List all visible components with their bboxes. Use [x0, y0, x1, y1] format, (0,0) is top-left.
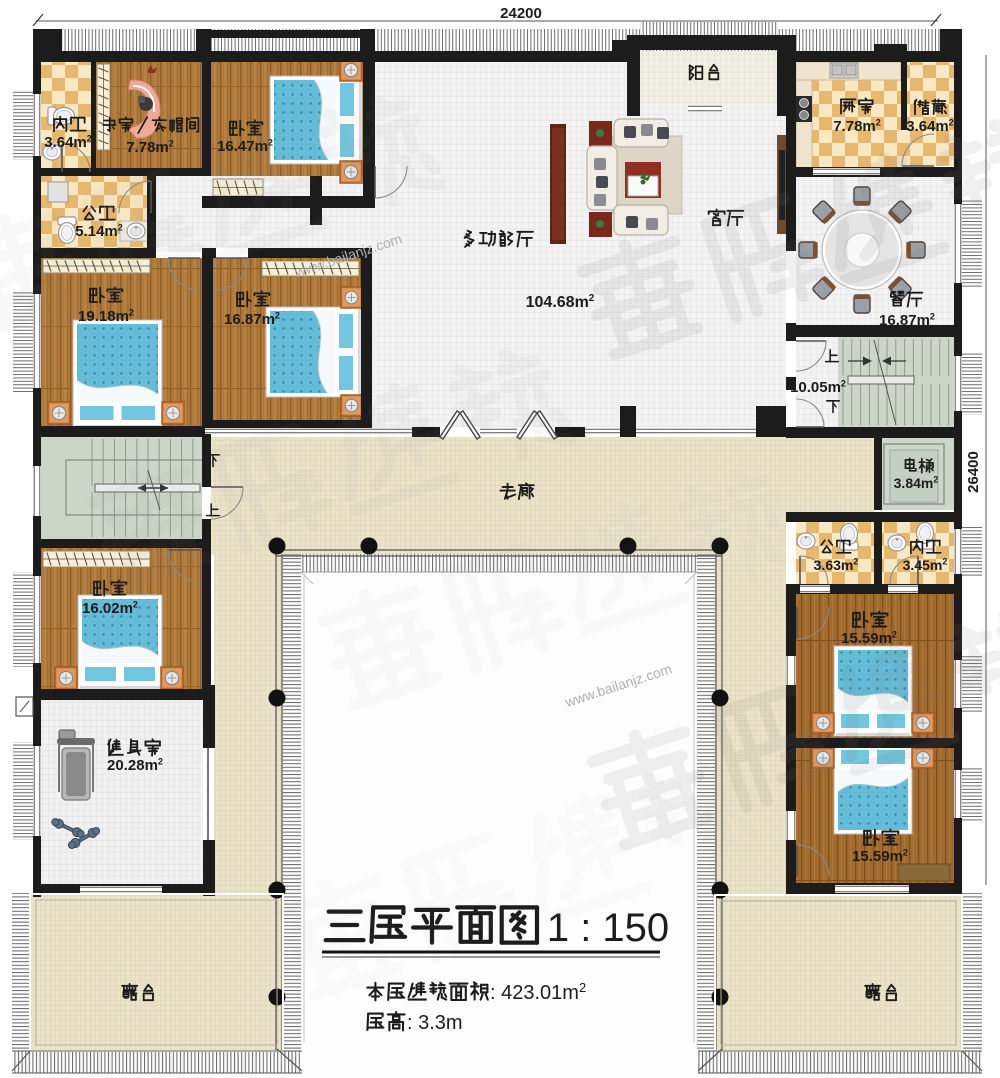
- svg-text:26400: 26400: [965, 451, 982, 493]
- svg-text:24200: 24200: [500, 5, 542, 22]
- svg-text:16.02m2: 16.02m2: [82, 599, 138, 617]
- svg-text:: 3.3m: : 3.3m: [407, 1012, 463, 1034]
- svg-text:15.59m2: 15.59m2: [841, 629, 897, 647]
- svg-text:: 423.01m2: : 423.01m2: [490, 980, 586, 1004]
- svg-text:3.64m2: 3.64m2: [44, 133, 92, 151]
- svg-text:16.87m2: 16.87m2: [879, 311, 935, 329]
- svg-text:7.78m2: 7.78m2: [833, 117, 881, 135]
- svg-text:3.63m2: 3.63m2: [814, 557, 859, 573]
- svg-text:10.05m2: 10.05m2: [790, 378, 846, 396]
- svg-text:3.64m2: 3.64m2: [906, 117, 954, 135]
- svg-text:7.78m2: 7.78m2: [126, 138, 174, 156]
- svg-text:104.68m2: 104.68m2: [526, 293, 595, 311]
- svg-text:3.45m2: 3.45m2: [903, 557, 948, 573]
- svg-text:3.84m2: 3.84m2: [894, 475, 939, 491]
- svg-text:16.87m2: 16.87m2: [224, 310, 280, 328]
- svg-text:19.18m2: 19.18m2: [78, 307, 134, 325]
- svg-text:20.28m2: 20.28m2: [107, 756, 163, 774]
- svg-text:15.59m2: 15.59m2: [852, 847, 908, 865]
